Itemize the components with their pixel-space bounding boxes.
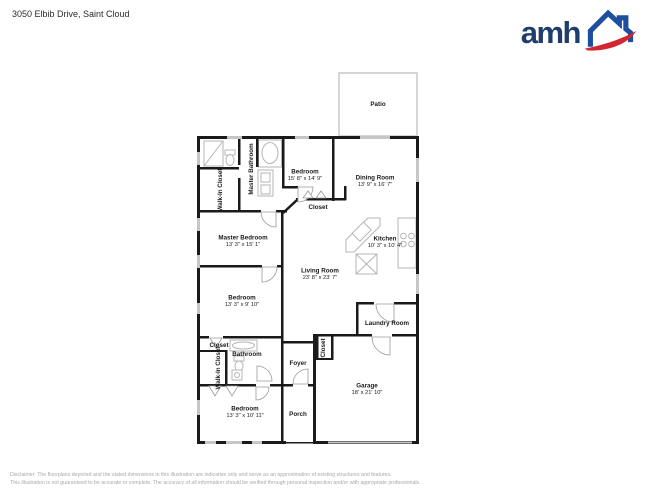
- room-label-master-bathroom: Master Bathroom: [247, 143, 254, 194]
- disclaimer: Disclaimer: The floorplans depicted and …: [10, 471, 648, 487]
- room-label-walk-in-closet-bottom: Walk-In Closet: [214, 347, 221, 390]
- room-label-living-room: Living Room 23' 8" x 23' 7": [301, 267, 339, 281]
- floorplan-page: 3050 Elbib Drive, Saint Cloud amh: [0, 0, 650, 488]
- room-label-porch: Porch: [289, 410, 307, 417]
- room-label-bedroom-3: Bedroom 13' 3" x 9' 10": [225, 294, 260, 308]
- room-label-patio: Patio: [370, 100, 385, 107]
- disclaimer-line-2: This illustration is not guaranteed to b…: [10, 479, 648, 487]
- room-label-bedroom-2: Bedroom 15' 8" x 14' 9": [288, 168, 323, 182]
- room-label-laundry-room: Laundry Room: [365, 319, 409, 326]
- room-label-closet-bedroom2: Closet: [308, 203, 327, 210]
- room-label-closet-foyer: Closet: [319, 338, 326, 357]
- disclaimer-line-1: Disclaimer: The floorplans depicted and …: [10, 471, 648, 479]
- room-label-foyer: Foyer: [290, 359, 307, 366]
- room-label-master-bedroom: Master Bedroom 13' 3" x 15' 1": [218, 234, 267, 248]
- room-label-walk-in-closet-top: Walk-In Closet: [216, 169, 223, 212]
- floor-plan: [0, 0, 650, 488]
- room-label-bathroom: Bathroom: [232, 350, 261, 357]
- room-label-bedroom-4: Bedroom 13' 3" x 10' 11": [226, 405, 263, 419]
- room-label-dining-room: Dining Room 13' 9" x 16' 7": [356, 174, 395, 188]
- room-label-kitchen: Kitchen 10' 3" x 10' 4": [368, 235, 403, 249]
- room-label-garage: Garage 18' x 21' 10": [352, 382, 383, 396]
